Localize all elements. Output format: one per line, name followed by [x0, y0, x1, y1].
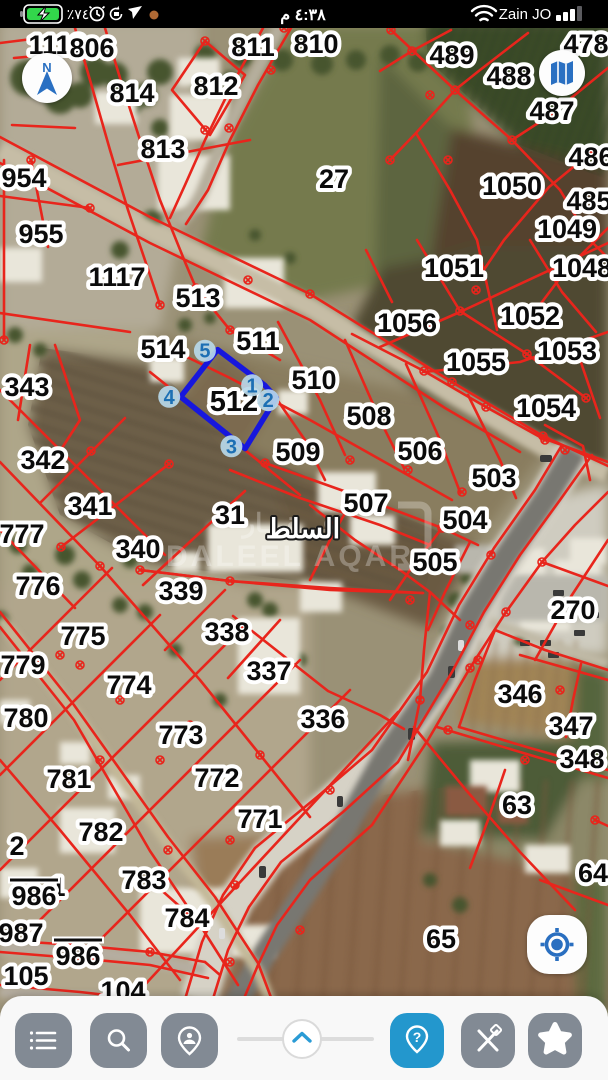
svg-text:31: 31 — [215, 500, 245, 530]
svg-text:1055: 1055 — [446, 347, 506, 377]
svg-text:1: 1 — [247, 375, 258, 397]
svg-text:?: ? — [413, 1029, 422, 1045]
svg-text:783: 783 — [121, 865, 166, 895]
svg-text:511: 511 — [236, 326, 280, 356]
svg-text:336: 336 — [300, 704, 345, 734]
svg-text:812: 812 — [193, 71, 238, 101]
svg-text:814: 814 — [109, 78, 154, 108]
svg-text:784: 784 — [164, 903, 209, 933]
svg-text:339: 339 — [158, 576, 203, 606]
svg-text:346: 346 — [497, 679, 542, 709]
svg-text:1049: 1049 — [537, 214, 597, 244]
svg-text:2: 2 — [9, 831, 24, 861]
svg-text:٪٧٤: ٪٧٤ — [67, 6, 90, 22]
svg-text:955: 955 — [18, 219, 63, 249]
svg-text:509: 509 — [275, 437, 320, 467]
svg-text:775: 775 — [60, 621, 105, 651]
svg-text:487: 487 — [529, 96, 574, 126]
svg-text:4: 4 — [164, 387, 176, 409]
svg-text:105: 105 — [3, 961, 48, 991]
svg-text:781: 781 — [46, 764, 91, 794]
svg-text:3: 3 — [226, 436, 237, 458]
svg-text:1117: 1117 — [88, 262, 145, 292]
svg-text:813: 813 — [140, 134, 185, 164]
svg-text:776: 776 — [15, 571, 60, 601]
svg-text:1051: 1051 — [424, 253, 484, 283]
svg-text:779: 779 — [0, 650, 45, 680]
svg-text:64: 64 — [578, 858, 608, 888]
svg-text:986: 986 — [11, 881, 56, 911]
svg-text:348: 348 — [559, 744, 604, 774]
svg-text:337: 337 — [246, 656, 291, 686]
svg-text:504: 504 — [442, 505, 487, 535]
svg-text:507: 507 — [343, 488, 388, 518]
svg-text:1054: 1054 — [516, 393, 576, 423]
svg-text:986: 986 — [55, 941, 100, 971]
svg-text:506: 506 — [397, 436, 442, 466]
svg-text:772: 772 — [194, 763, 239, 793]
svg-text:DALEEL AQAR: DALEEL AQAR — [166, 540, 414, 573]
svg-text:270: 270 — [550, 595, 595, 625]
svg-text:503: 503 — [471, 463, 516, 493]
svg-text:810: 810 — [293, 29, 338, 59]
svg-text:508: 508 — [346, 401, 391, 431]
svg-text:782: 782 — [78, 817, 123, 847]
svg-text:514: 514 — [140, 334, 185, 364]
svg-text:488: 488 — [486, 61, 531, 91]
svg-text:٨٣:٤ م: ٨٣:٤ م — [280, 7, 326, 25]
svg-text:777: 777 — [0, 519, 45, 549]
svg-text:771: 771 — [237, 804, 282, 834]
svg-text:510: 510 — [291, 365, 336, 395]
svg-text:774: 774 — [106, 670, 151, 700]
svg-text:1053: 1053 — [537, 336, 597, 366]
svg-text:1052: 1052 — [500, 301, 560, 331]
svg-text:65: 65 — [426, 924, 456, 954]
svg-text:806: 806 — [69, 33, 114, 63]
svg-text:341: 341 — [67, 491, 112, 521]
svg-text:340: 340 — [115, 534, 160, 564]
svg-text:505: 505 — [412, 547, 457, 577]
svg-text:2: 2 — [263, 390, 274, 412]
svg-text:5: 5 — [199, 341, 210, 363]
svg-text:342: 342 — [20, 445, 65, 475]
svg-text:485: 485 — [566, 186, 608, 216]
svg-text:811: 811 — [231, 32, 275, 62]
svg-text:1056: 1056 — [377, 308, 437, 338]
svg-text:489: 489 — [429, 40, 474, 70]
svg-text:347: 347 — [548, 711, 593, 741]
svg-text:1048: 1048 — [552, 253, 608, 283]
svg-text:السلط: السلط — [266, 514, 340, 544]
svg-text:780: 780 — [3, 703, 48, 733]
svg-text:338: 338 — [204, 617, 249, 647]
svg-text:486: 486 — [568, 142, 608, 172]
svg-text:27: 27 — [319, 164, 349, 194]
svg-text:513: 513 — [175, 283, 220, 313]
svg-text:Zain JO: Zain JO — [499, 6, 552, 23]
svg-text:63: 63 — [502, 790, 532, 820]
svg-text:1050: 1050 — [482, 171, 542, 201]
svg-text:773: 773 — [158, 720, 203, 750]
svg-text:987: 987 — [0, 918, 44, 948]
svg-text:954: 954 — [1, 163, 46, 193]
svg-text:343: 343 — [4, 372, 49, 402]
